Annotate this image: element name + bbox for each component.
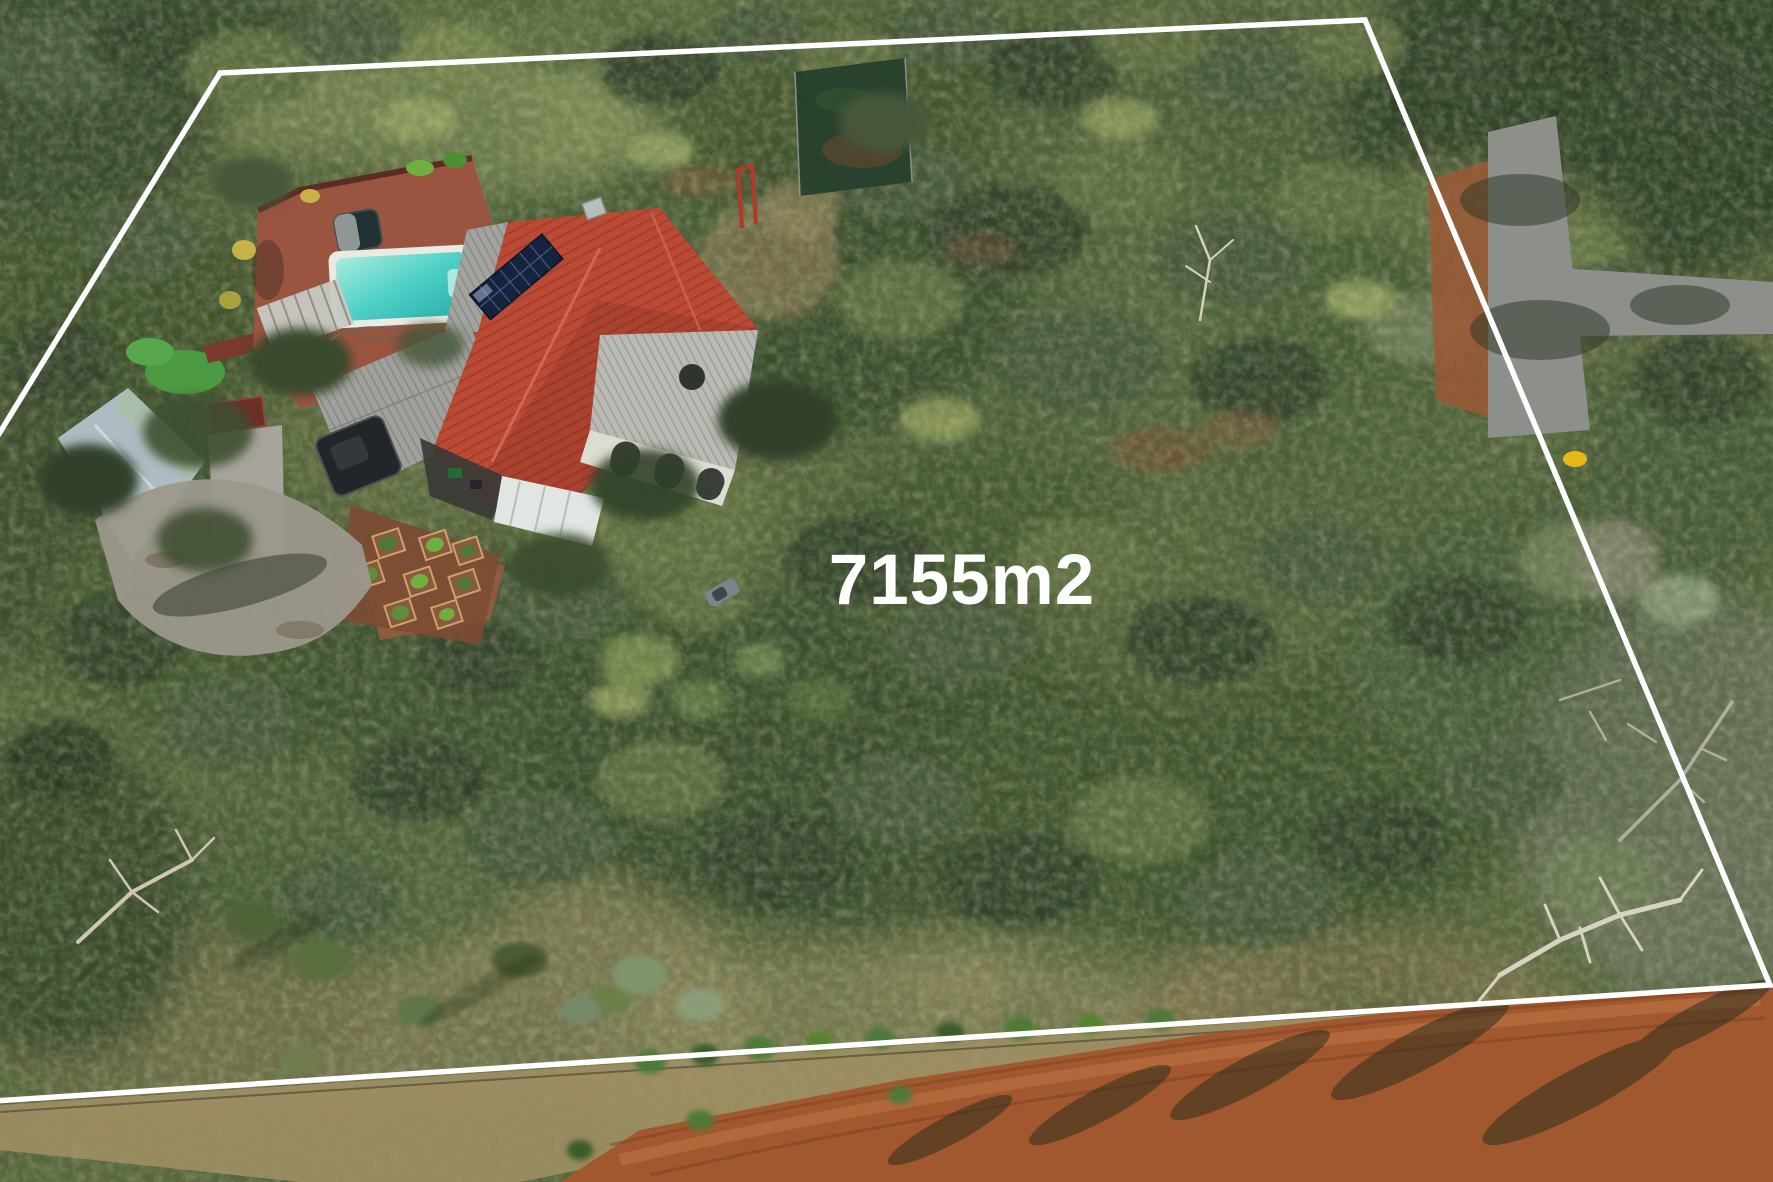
yellow-object (1563, 451, 1587, 467)
aerial-photo-canvas: 7155m2 (0, 0, 1773, 1182)
spa-hot-tub (333, 208, 383, 253)
palm-plant (232, 240, 256, 260)
garden-bush (406, 160, 434, 176)
aerial-photo: 7155m2 (0, 0, 1773, 1182)
area-label: 7155m2 (829, 541, 1096, 620)
round-opening (679, 364, 705, 390)
